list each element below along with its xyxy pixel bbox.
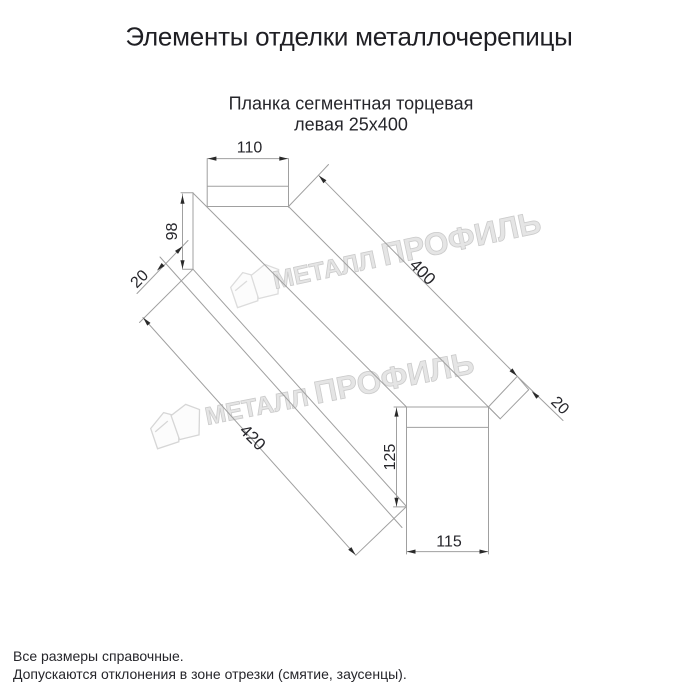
svg-text:Планка сегментная торцевая: Планка сегментная торцевая [229,94,474,114]
svg-text:Все размеры справочные.: Все размеры справочные. [13,648,184,664]
svg-text:420: 420 [236,421,269,454]
svg-text:20: 20 [547,394,572,419]
svg-text:Допускаются отклонения в зоне: Допускаются отклонения в зоне отрезки (с… [13,666,407,682]
svg-text:115: 115 [436,534,462,551]
svg-text:Элементы отделки металлочерепи: Элементы отделки металлочерепицы [125,22,572,52]
svg-text:МЕТАЛЛ ПРОФИЛЬ: МЕТАЛЛ ПРОФИЛЬ [201,344,476,432]
svg-text:20: 20 [128,267,153,292]
svg-text:125: 125 [382,444,399,471]
svg-text:МЕТАЛЛ ПРОФИЛЬ: МЕТАЛЛ ПРОФИЛЬ [269,204,544,296]
svg-text:110: 110 [237,140,263,157]
svg-text:левая 25х400: левая 25х400 [294,115,408,135]
svg-text:98: 98 [164,223,181,241]
